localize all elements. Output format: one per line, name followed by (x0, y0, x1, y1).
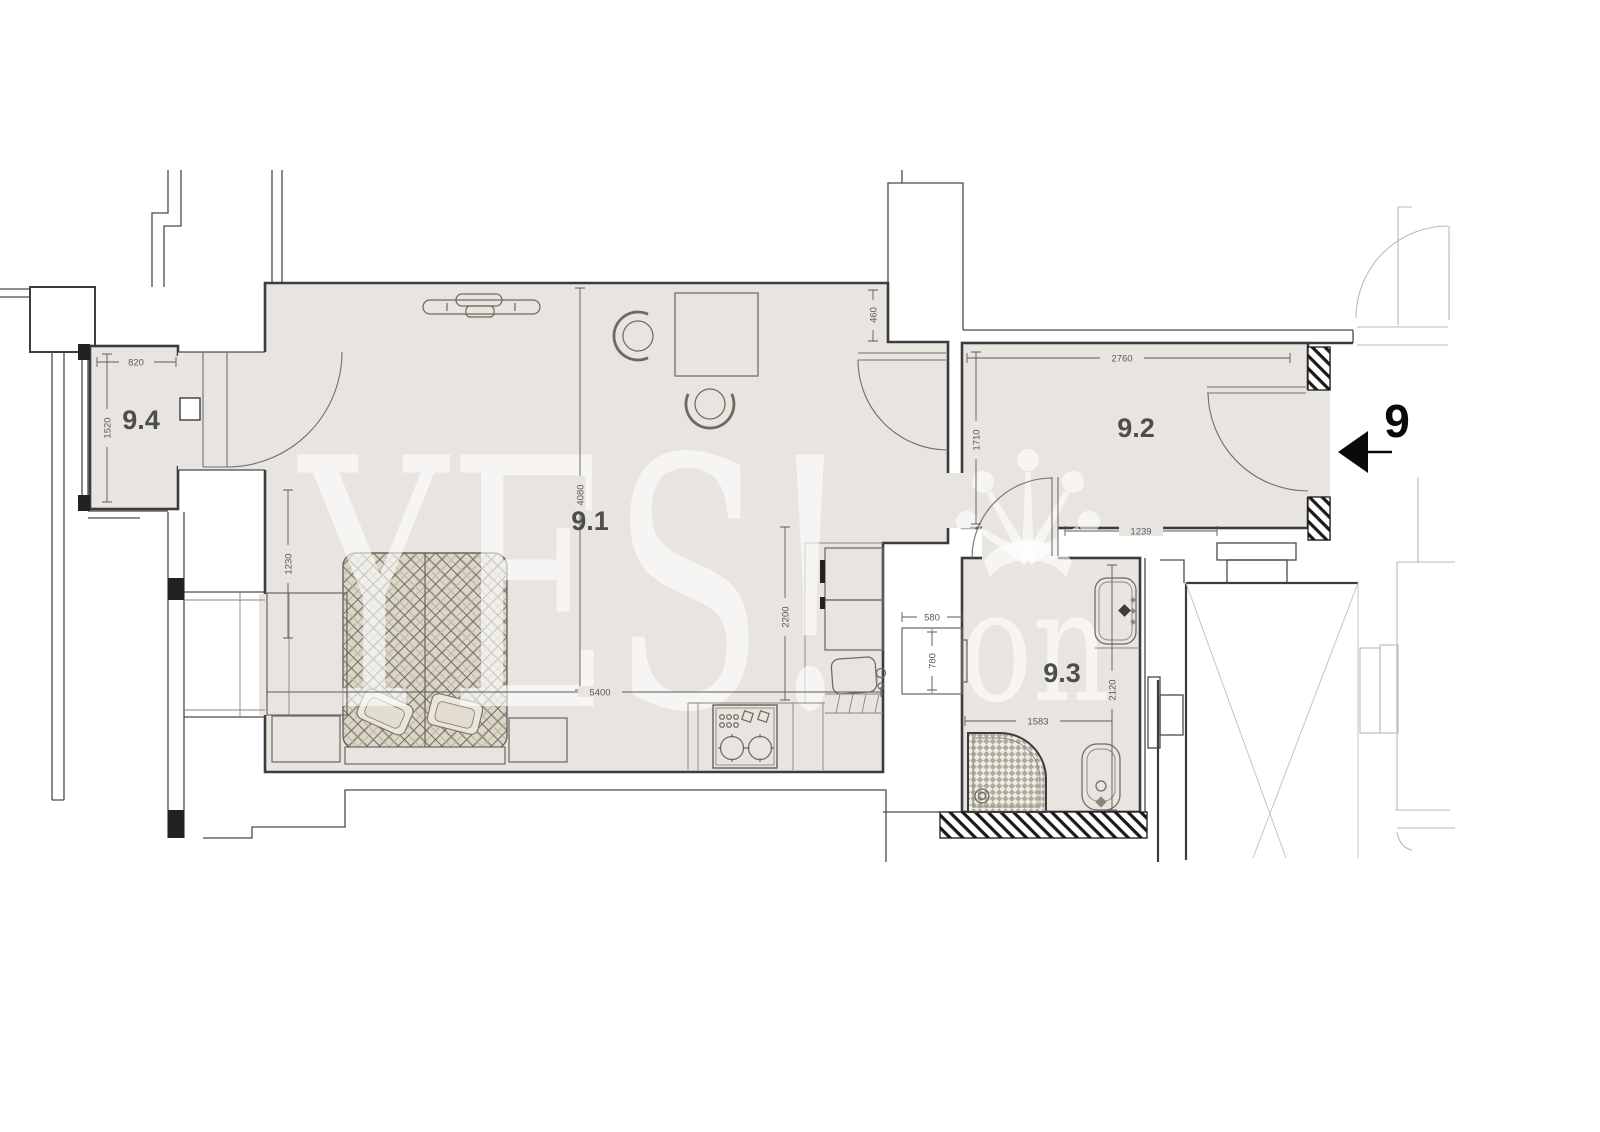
svg-text:1239: 1239 (1130, 527, 1151, 538)
room-label-9-2: 9.2 (1117, 413, 1155, 443)
svg-text:1520: 1520 (103, 417, 114, 438)
room-label-9-1: 9.1 (571, 506, 609, 536)
stove (713, 705, 777, 768)
entrance-marker: 9 (1338, 395, 1410, 473)
floor-plan: YES! on (0, 0, 1600, 1132)
svg-text:580: 580 (924, 613, 940, 624)
svg-text:1710: 1710 (972, 429, 983, 450)
svg-text:460: 460 (869, 307, 880, 323)
svg-text:780: 780 (928, 653, 939, 669)
svg-text:2760: 2760 (1111, 354, 1132, 365)
entrance-jamb-top (1308, 347, 1330, 390)
entrance-jamb-bottom (1308, 497, 1330, 540)
dimension-580: 580 (902, 611, 962, 624)
room-label-9-3: 9.3 (1043, 658, 1081, 688)
svg-text:5400: 5400 (589, 688, 610, 699)
room-label-9-4: 9.4 (122, 405, 160, 435)
elevator-shaft (1158, 583, 1358, 862)
svg-text:820: 820 (128, 358, 144, 369)
svg-text:2120: 2120 (1108, 679, 1119, 700)
svg-text:4080: 4080 (576, 484, 587, 505)
unit-number: 9 (1384, 395, 1410, 447)
watermark-subtext: on (960, 556, 1110, 737)
svg-text:2200: 2200 (781, 606, 792, 627)
svg-text:1230: 1230 (284, 553, 295, 574)
bathroom-south-wall (940, 812, 1147, 838)
dimension-780: 780 (927, 632, 939, 690)
wall-pier (180, 398, 200, 420)
floor-plan-page: YES! on (0, 0, 1600, 1132)
entrance-arrow-icon (1338, 431, 1368, 473)
svg-text:1583: 1583 (1027, 717, 1048, 728)
left-column (30, 287, 95, 352)
